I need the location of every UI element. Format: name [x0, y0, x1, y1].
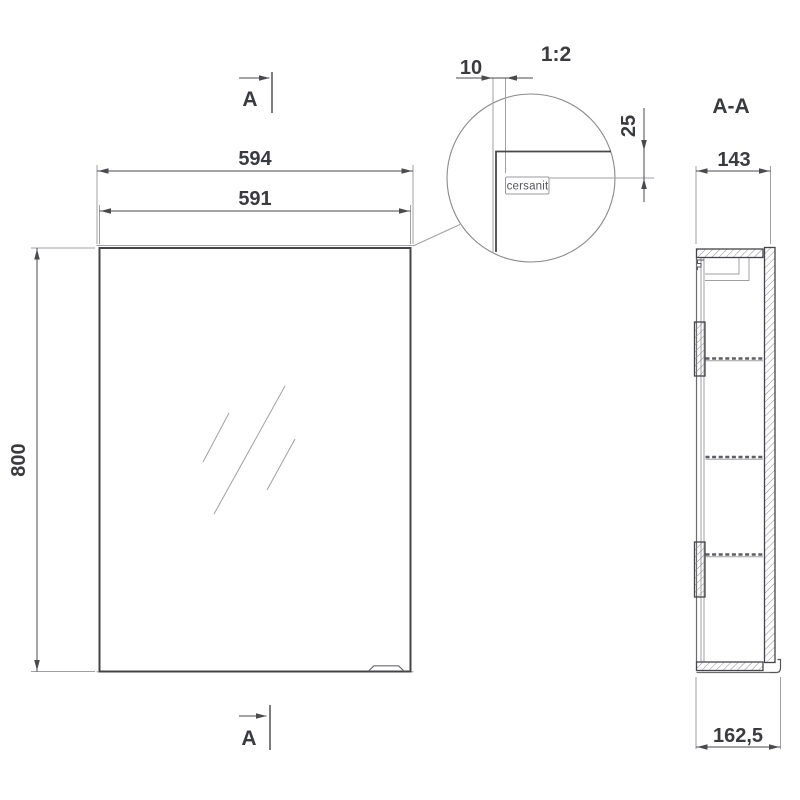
mirror-bracket-profile [705, 258, 739, 275]
wall-bracket [695, 322, 706, 376]
section-letter-top: A [242, 88, 257, 111]
wall-bracket [695, 542, 706, 597]
dimension-800: 800 [8, 248, 95, 672]
front-view [97, 246, 414, 672]
dim-10-label: 10 [460, 57, 482, 79]
bottom-panel-section [697, 662, 764, 671]
section-view: A-A 143 [695, 95, 781, 749]
dim-594-label: 594 [238, 148, 272, 170]
section-letter-bottom: A [241, 727, 256, 750]
section-cut-marker-top: A [239, 72, 272, 113]
section-cut-marker-bottom: A [239, 705, 270, 750]
dimension-162-5: 162,5 [696, 677, 781, 749]
dim-25-label: 25 [618, 115, 640, 137]
detail-view: cersanit 10 1:2 25 [413, 43, 654, 262]
mirror-glass-marks [203, 386, 295, 514]
door-handle-profile [369, 666, 405, 671]
logo-text: cersanit [507, 181, 549, 193]
technical-drawing-canvas: 594 591 800 A A [0, 0, 800, 800]
section-title: A-A [712, 95, 749, 118]
dim-591-label: 591 [238, 188, 271, 210]
mirror-reflection-stroke [203, 413, 229, 462]
dim-143-label: 143 [717, 149, 750, 171]
mirror-bracket-profile [705, 258, 749, 281]
mirror-reflection-stroke [267, 439, 295, 490]
door-corner-edge [496, 152, 611, 253]
shelves [706, 359, 764, 557]
dimension-143: 143 [696, 149, 771, 244]
cersanit-logo: cersanit [506, 177, 550, 194]
dimension-10: 10 [456, 57, 533, 79]
mirror-cabinet-technical-drawing: 594 591 800 A A [0, 0, 800, 800]
top-panel-section [697, 249, 764, 258]
dim-162-5-label: 162,5 [713, 725, 763, 747]
detail-scale-label: 1:2 [541, 43, 571, 66]
mirror-door-section [765, 248, 776, 663]
mirror-door-outline [100, 248, 411, 672]
dim-800-label: 800 [8, 443, 30, 476]
dimension-591: 591 [100, 188, 411, 244]
dimension-25: 25 [618, 108, 644, 202]
detail-leader-line [413, 225, 460, 247]
mirror-reflection-stroke [214, 386, 285, 514]
